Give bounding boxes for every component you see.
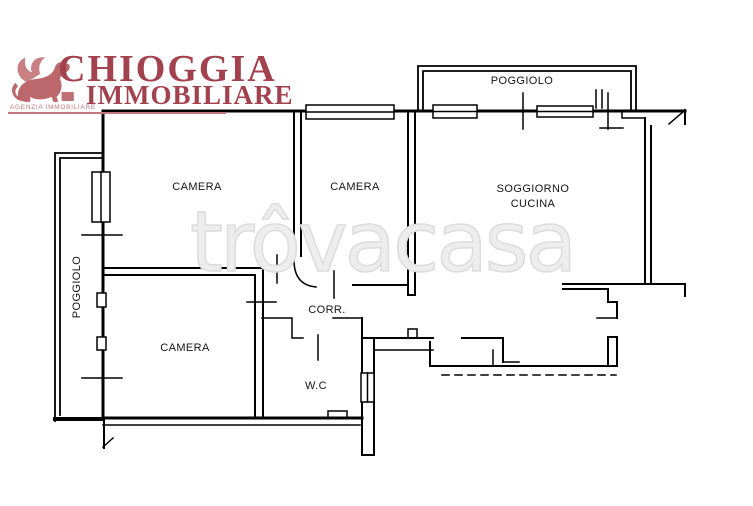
label-poggiolo-left: POGGIOLO (71, 256, 83, 319)
label-corridoio: CORR. (308, 304, 345, 316)
windows (92, 105, 593, 402)
exterior-walls (103, 111, 685, 418)
label-wc: W.C (305, 380, 327, 392)
corridor-curve (294, 260, 316, 287)
agency-logo: CHIOGGIA IMMOBILIARE AGENZIA IMMOBILIARE (0, 44, 260, 120)
label-camera-middle: CAMERA (330, 181, 379, 193)
label-camera-top-left: CAMERA (172, 181, 221, 193)
label-poggiolo-top: POGGIOLO (491, 75, 554, 87)
label-soggiorno: SOGGIORNO (497, 183, 570, 195)
logo-name-line2: IMMOBILIARE (86, 82, 294, 109)
floorplan-page: POGGIOLO POGGIOLO CAMERA CAMERA SOGGIORN… (0, 0, 753, 506)
label-cucina: CUCINA (511, 198, 556, 210)
logo-tagline: AGENZIA IMMOBILIARE (10, 104, 96, 111)
interior-walls (104, 110, 685, 455)
label-camera-bottom: CAMERA (160, 342, 209, 354)
logo-underline (8, 112, 226, 114)
